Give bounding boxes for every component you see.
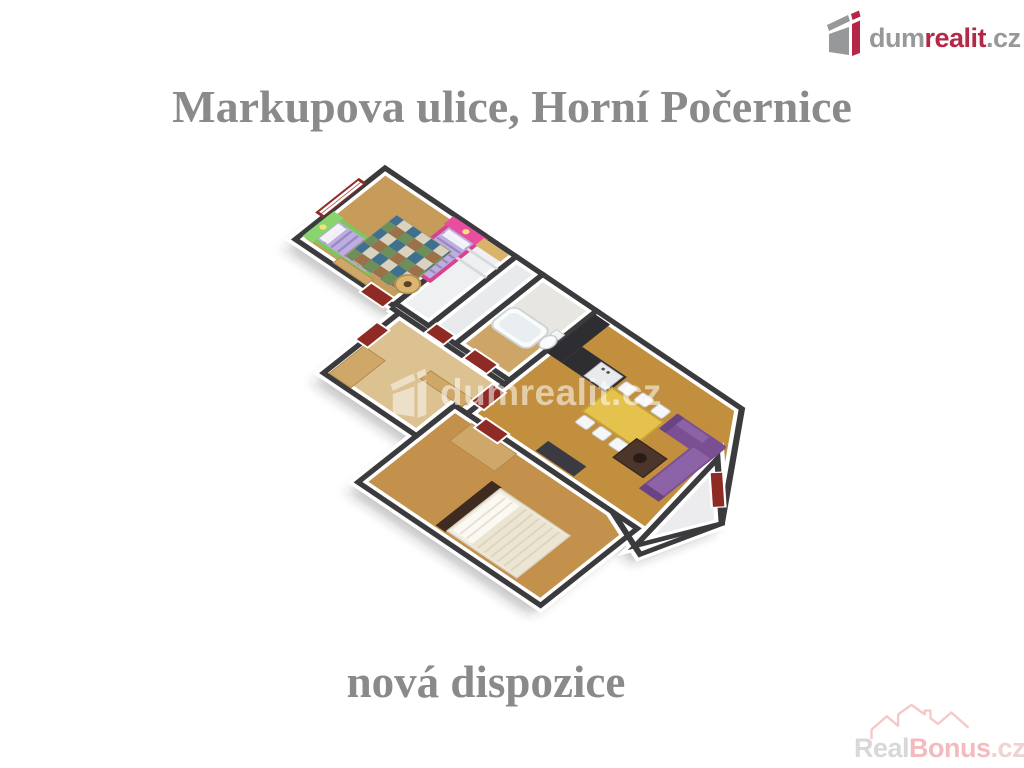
plan-watermark: dumrealit.cz — [388, 366, 662, 420]
dumrealit-logo: dumrealit.cz — [826, 8, 1021, 58]
realbonus-accent: Bonus — [909, 733, 991, 763]
realbonus-suffix: .cz — [991, 733, 1024, 763]
page-title: Markupova ulice, Horní Počernice — [0, 80, 1024, 133]
plan-watermark-text: dumrealit.cz — [440, 372, 662, 414]
dumrealit-logo-wordmark: dumrealit.cz — [869, 23, 1021, 58]
logo-accent: realit — [925, 23, 987, 53]
logo-prefix: dum — [869, 23, 925, 53]
realbonus-watermark: RealBonus.cz — [854, 703, 1014, 764]
plan-watermark-house-icon — [388, 366, 430, 420]
logo-suffix: .cz — [986, 23, 1021, 53]
realbonus-prefix: Real — [854, 733, 909, 763]
dumrealit-logo-icon — [826, 8, 862, 58]
caption-nova-dispozice: nová dispozice — [0, 656, 998, 708]
realbonus-wordmark: RealBonus.cz — [854, 733, 1014, 764]
